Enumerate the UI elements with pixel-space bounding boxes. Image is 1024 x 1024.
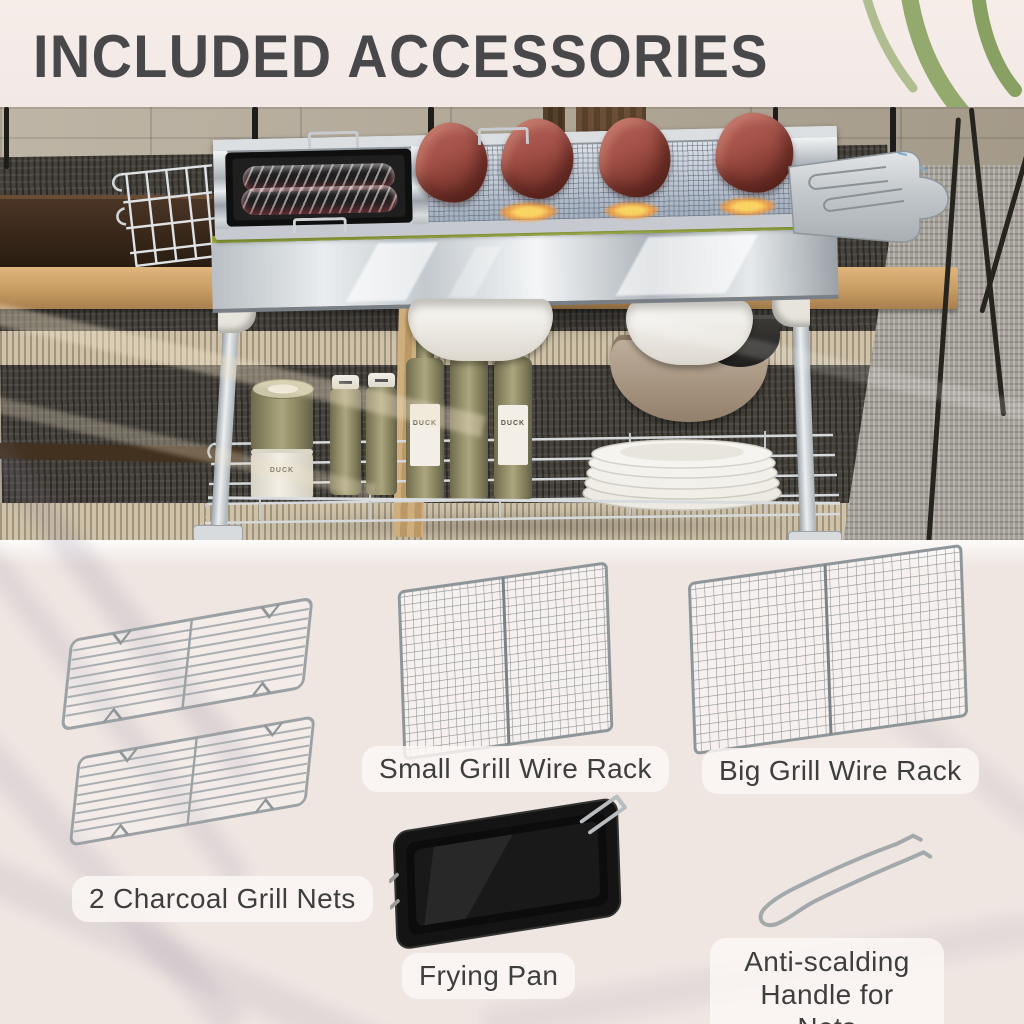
lifestyle-photo: DUCK DUCK xyxy=(0,107,1024,540)
anti-scalding-handle-label: Anti-scalding Handle for Nets xyxy=(710,938,944,1024)
frying-pan-label: Frying Pan xyxy=(402,953,575,999)
palm-leaves-icon xyxy=(855,0,1024,118)
grill-cooking-surface xyxy=(213,126,839,240)
fence-post xyxy=(4,107,9,169)
pan-front-handle xyxy=(293,217,347,233)
grill-foot-right xyxy=(788,531,842,540)
can-slot xyxy=(375,379,388,382)
charcoal-flame xyxy=(498,201,558,222)
frying-pan xyxy=(387,777,649,969)
charcoal-flame xyxy=(603,201,659,220)
pan-handle xyxy=(308,131,359,149)
product-infographic: INCLUDED ACCESSORIES xyxy=(0,0,1024,1024)
accessories-panel: 2 Charcoal Grill Nets Small Grill Wire R… xyxy=(0,540,1024,1024)
steel-reflection xyxy=(346,242,438,302)
small-grill-wire-rack xyxy=(396,560,615,763)
white-bowl-front xyxy=(408,299,553,361)
header-band: INCLUDED ACCESSORIES xyxy=(0,0,1024,107)
charcoal-flame xyxy=(718,196,776,216)
bottle-label-text: DUCK xyxy=(498,420,528,427)
page-title: INCLUDED ACCESSORIES xyxy=(33,22,769,91)
steel-reflection xyxy=(616,235,758,296)
grill-foot-left xyxy=(193,525,243,540)
pork-loin xyxy=(241,185,398,216)
grill-pan-bay xyxy=(225,149,413,227)
charcoal-nets-label: 2 Charcoal Grill Nets xyxy=(72,876,373,922)
pan-handle xyxy=(478,127,529,145)
big-rack-label: Big Grill Wire Rack xyxy=(702,748,979,794)
grill-side-table xyxy=(786,147,958,247)
steel-reflection xyxy=(448,246,502,297)
slim-can-cap xyxy=(368,373,395,388)
anti-scalding-handle xyxy=(736,815,947,937)
frying-pan-in-grill xyxy=(232,155,405,221)
bottle-label: DUCK xyxy=(498,405,528,465)
